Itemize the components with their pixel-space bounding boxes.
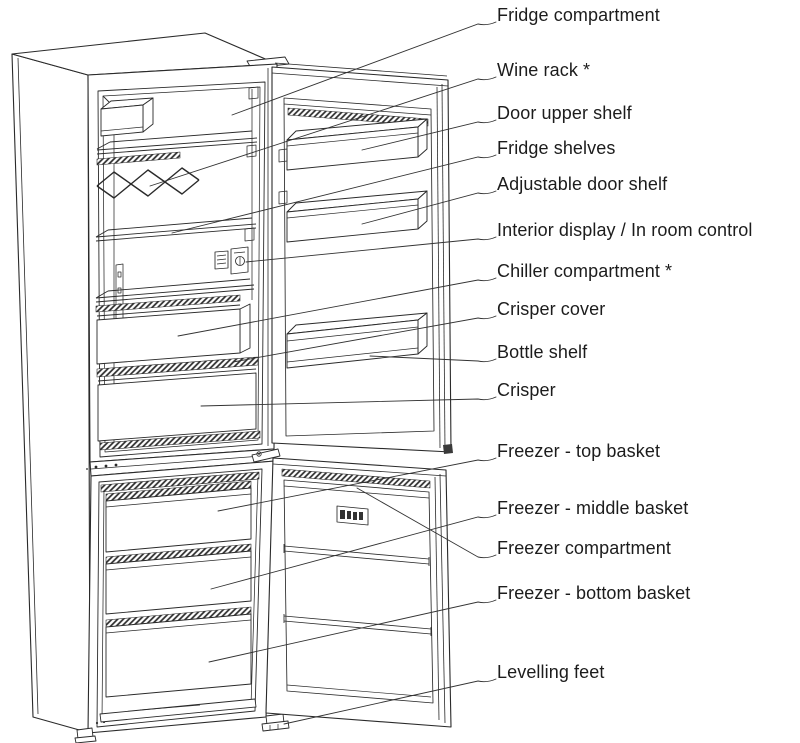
- label-freezer-bottom-basket: Freezer - bottom basket: [497, 583, 690, 603]
- label-wine-rack: Wine rack *: [497, 60, 590, 80]
- label-fridge-compartment: Fridge compartment: [497, 5, 660, 25]
- freezer-interior: [100, 472, 259, 722]
- label-fridge-shelves: Fridge shelves: [497, 138, 615, 158]
- label-freezer-middle-basket: Freezer - middle basket: [497, 498, 688, 518]
- label-interior-display: Interior display / In room control: [497, 220, 753, 240]
- levelling-foot-front: [262, 714, 289, 731]
- interior-light-box: [101, 98, 153, 136]
- label-crisper-cover: Crisper cover: [497, 299, 605, 319]
- freezer-basket-bottom: [106, 607, 251, 697]
- label-levelling-feet: Levelling feet: [497, 662, 604, 682]
- label-door-upper-shelf: Door upper shelf: [497, 103, 632, 123]
- label-freezer-top-basket: Freezer - top basket: [497, 441, 660, 461]
- label-bottle-shelf: Bottle shelf: [497, 342, 587, 362]
- fridge-door: [272, 63, 453, 454]
- label-freezer-compartment: Freezer compartment: [497, 538, 671, 558]
- freezer-door: [266, 458, 451, 727]
- label-crisper: Crisper: [497, 380, 556, 400]
- fridge-diagram: [0, 0, 800, 743]
- label-adjustable-door-shelf: Adjustable door shelf: [497, 174, 667, 194]
- freezer-display-panel: [337, 506, 368, 525]
- label-chiller-compartment: Chiller compartment *: [497, 261, 672, 281]
- fridge-parts-page: Fridge compartment Wine rack * Door uppe…: [0, 0, 800, 743]
